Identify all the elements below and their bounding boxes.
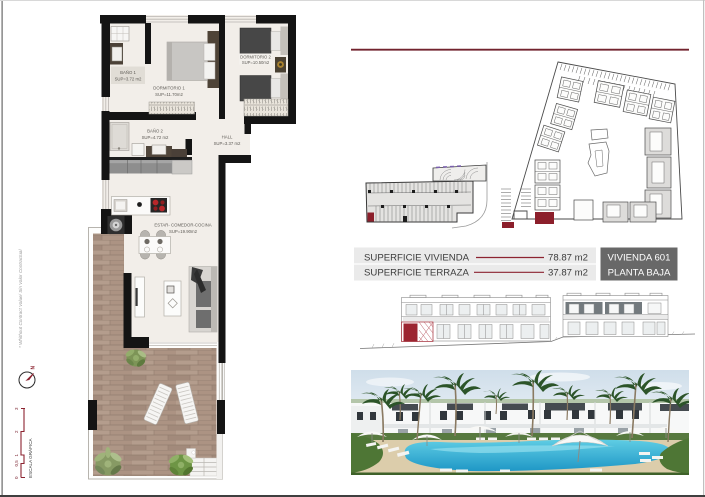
svg-text:BAÑO 1: BAÑO 1 [120,70,136,75]
svg-text:SUP=3.72 m2: SUP=3.72 m2 [115,77,142,82]
svg-text:BAÑO 2: BAÑO 2 [147,129,163,134]
svg-text:SUP=4.72 m2: SUP=4.72 m2 [142,135,169,140]
svg-text:VIVIENDA 601: VIVIENDA 601 [608,253,671,264]
svg-text:DORMITORIO 1: DORMITORIO 1 [153,86,185,91]
svg-text:SUPERFICIE TERRAZA: SUPERFICIE TERRAZA [364,268,469,279]
svg-text:37.87 m2: 37.87 m2 [548,268,588,279]
svg-text:78.87 m2: 78.87 m2 [548,253,588,264]
svg-text:SUP=3.37 m2: SUP=3.37 m2 [214,141,241,146]
svg-text:DORMITORIO 2: DORMITORIO 2 [240,55,271,60]
svg-text:SUP=19.90m2: SUP=19.90m2 [169,229,198,234]
svg-text:SUP=11.70m2: SUP=11.70m2 [155,92,183,97]
svg-text:ESCALA GRÁFICA: ESCALA GRÁFICA [27,437,33,478]
svg-text:SUPERFICIE VIVIENDA: SUPERFICIE VIVIENDA [364,253,470,264]
svg-text:N: N [31,366,37,370]
svg-text:SUP=10.50m2: SUP=10.50m2 [242,60,270,65]
svg-text:ESTAR- COMEDOR-COCINA: ESTAR- COMEDOR-COCINA [154,223,211,228]
svg-text:* Whithout Contract Value/ Sin: * Whithout Contract Value/ Sin Valor Con… [18,249,23,348]
svg-text:HALL: HALL [222,135,233,140]
svg-text:PLANTA BAJA: PLANTA BAJA [608,268,671,279]
svg-text:0,5: 0,5 [14,460,19,467]
